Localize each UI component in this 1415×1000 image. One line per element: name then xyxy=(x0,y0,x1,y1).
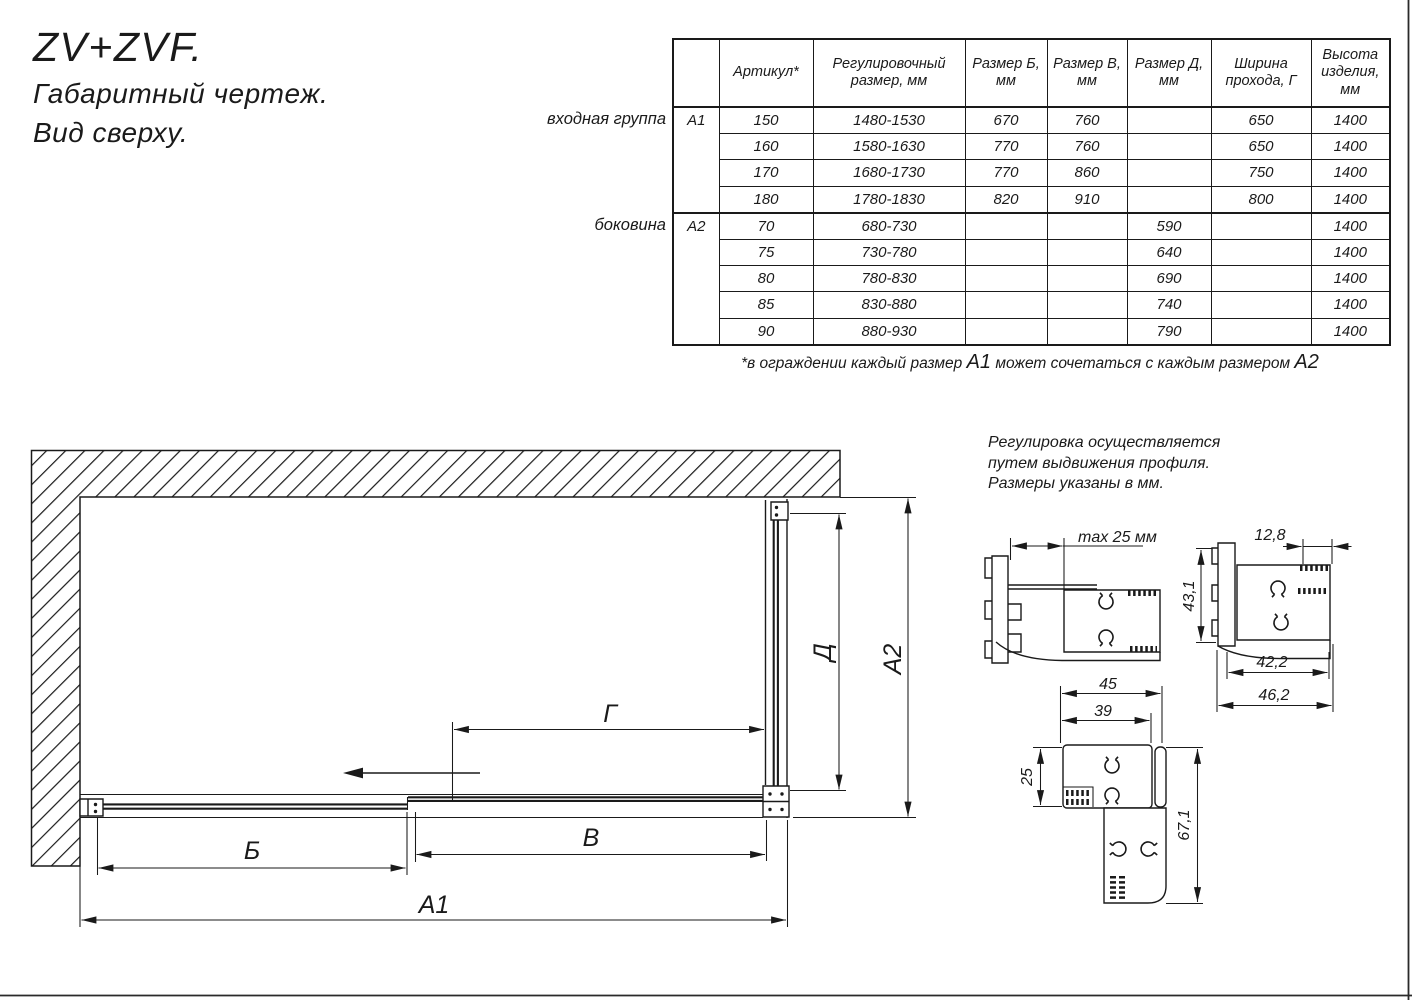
dim-label-671: 67,1 xyxy=(1176,809,1193,840)
l-profile-capsule xyxy=(1155,747,1166,807)
dim-label-45: 45 xyxy=(1099,676,1117,693)
corner-profile-comb xyxy=(1212,543,1235,646)
fixed-panel-glass xyxy=(103,804,408,808)
slide-direction-arrow xyxy=(343,768,480,779)
side-panel-bottom-bracket xyxy=(763,786,789,817)
dim-label-25: 25 xyxy=(1019,768,1036,787)
dim-label-462: 46,2 xyxy=(1258,687,1289,704)
drawing-sheet: ZV+ZVF. Габаритный чертеж. Вид сверху. в… xyxy=(0,0,1415,1000)
page-frame xyxy=(0,0,1412,1000)
side-panel-top-bracket xyxy=(771,502,788,520)
detail-corner-profile-bottom: 45 39 25 67,1 xyxy=(1019,676,1198,903)
dim-label-a1: А1 xyxy=(417,891,450,919)
dim-label-39: 39 xyxy=(1094,703,1112,720)
detail-corner-profile-right: 12,8 43,1 42,2 46,2 xyxy=(1181,527,1352,706)
dim-label-422: 42,2 xyxy=(1256,654,1287,671)
bracket-screws xyxy=(94,506,784,813)
dim-label-a2: А2 xyxy=(879,644,907,677)
sliding-door-glass xyxy=(408,797,763,801)
side-panel-glass xyxy=(774,503,778,811)
plan-drawing: Б В А1 Г Д А2 max 25 мм xyxy=(0,0,1415,1000)
dim-label-431: 43,1 xyxy=(1181,580,1198,611)
profile-top-flange xyxy=(1008,585,1097,589)
dim-label-128: 12,8 xyxy=(1254,527,1285,544)
detail-wall-profile: max 25 мм xyxy=(985,529,1160,663)
dim-label-d: Д xyxy=(809,643,837,664)
fixed-panel-wall-bracket xyxy=(80,799,103,816)
l-profile-top-bar xyxy=(1063,745,1152,808)
side-panel-profile-edges xyxy=(766,499,788,818)
dim-label-b: Б xyxy=(244,837,260,865)
dim-label-g: Г xyxy=(603,700,619,728)
side-panel xyxy=(94,499,789,818)
entrance-group xyxy=(80,768,765,818)
dim-label-max25: max 25 мм xyxy=(1078,529,1157,546)
dim-label-v: В xyxy=(583,824,600,852)
plan-dimensions: Б В А1 Г Д А2 xyxy=(82,499,909,921)
